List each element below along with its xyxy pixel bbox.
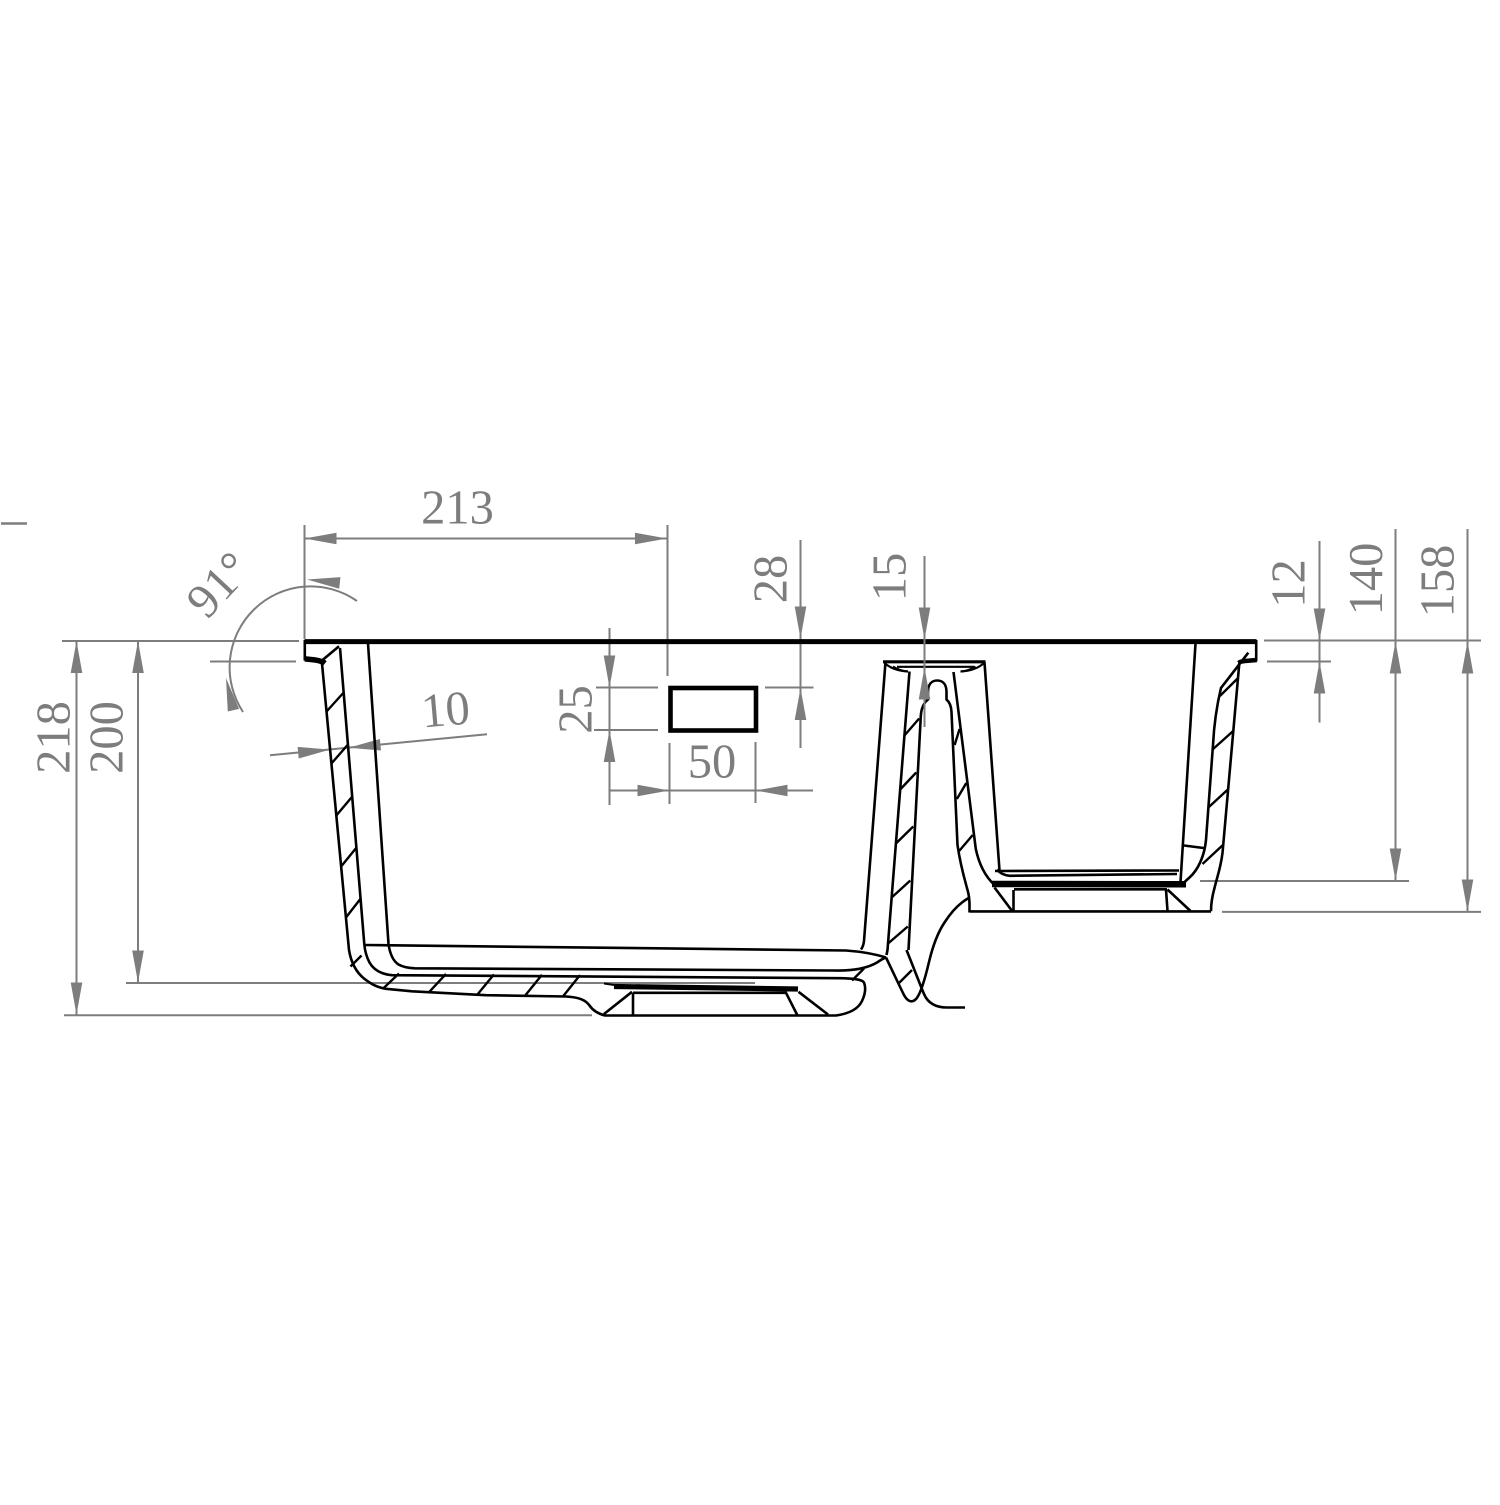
svg-text:140: 140 <box>1340 543 1393 616</box>
svg-text:213: 213 <box>421 482 494 535</box>
svg-text:218: 218 <box>28 701 81 774</box>
svg-text:15: 15 <box>864 553 917 602</box>
svg-text:25: 25 <box>550 685 603 734</box>
svg-text:28: 28 <box>745 555 798 604</box>
svg-text:50: 50 <box>688 736 737 789</box>
svg-text:158: 158 <box>1412 545 1465 618</box>
svg-text:10: 10 <box>419 681 472 738</box>
svg-text:200: 200 <box>81 701 134 774</box>
svg-text:12: 12 <box>1263 559 1316 608</box>
